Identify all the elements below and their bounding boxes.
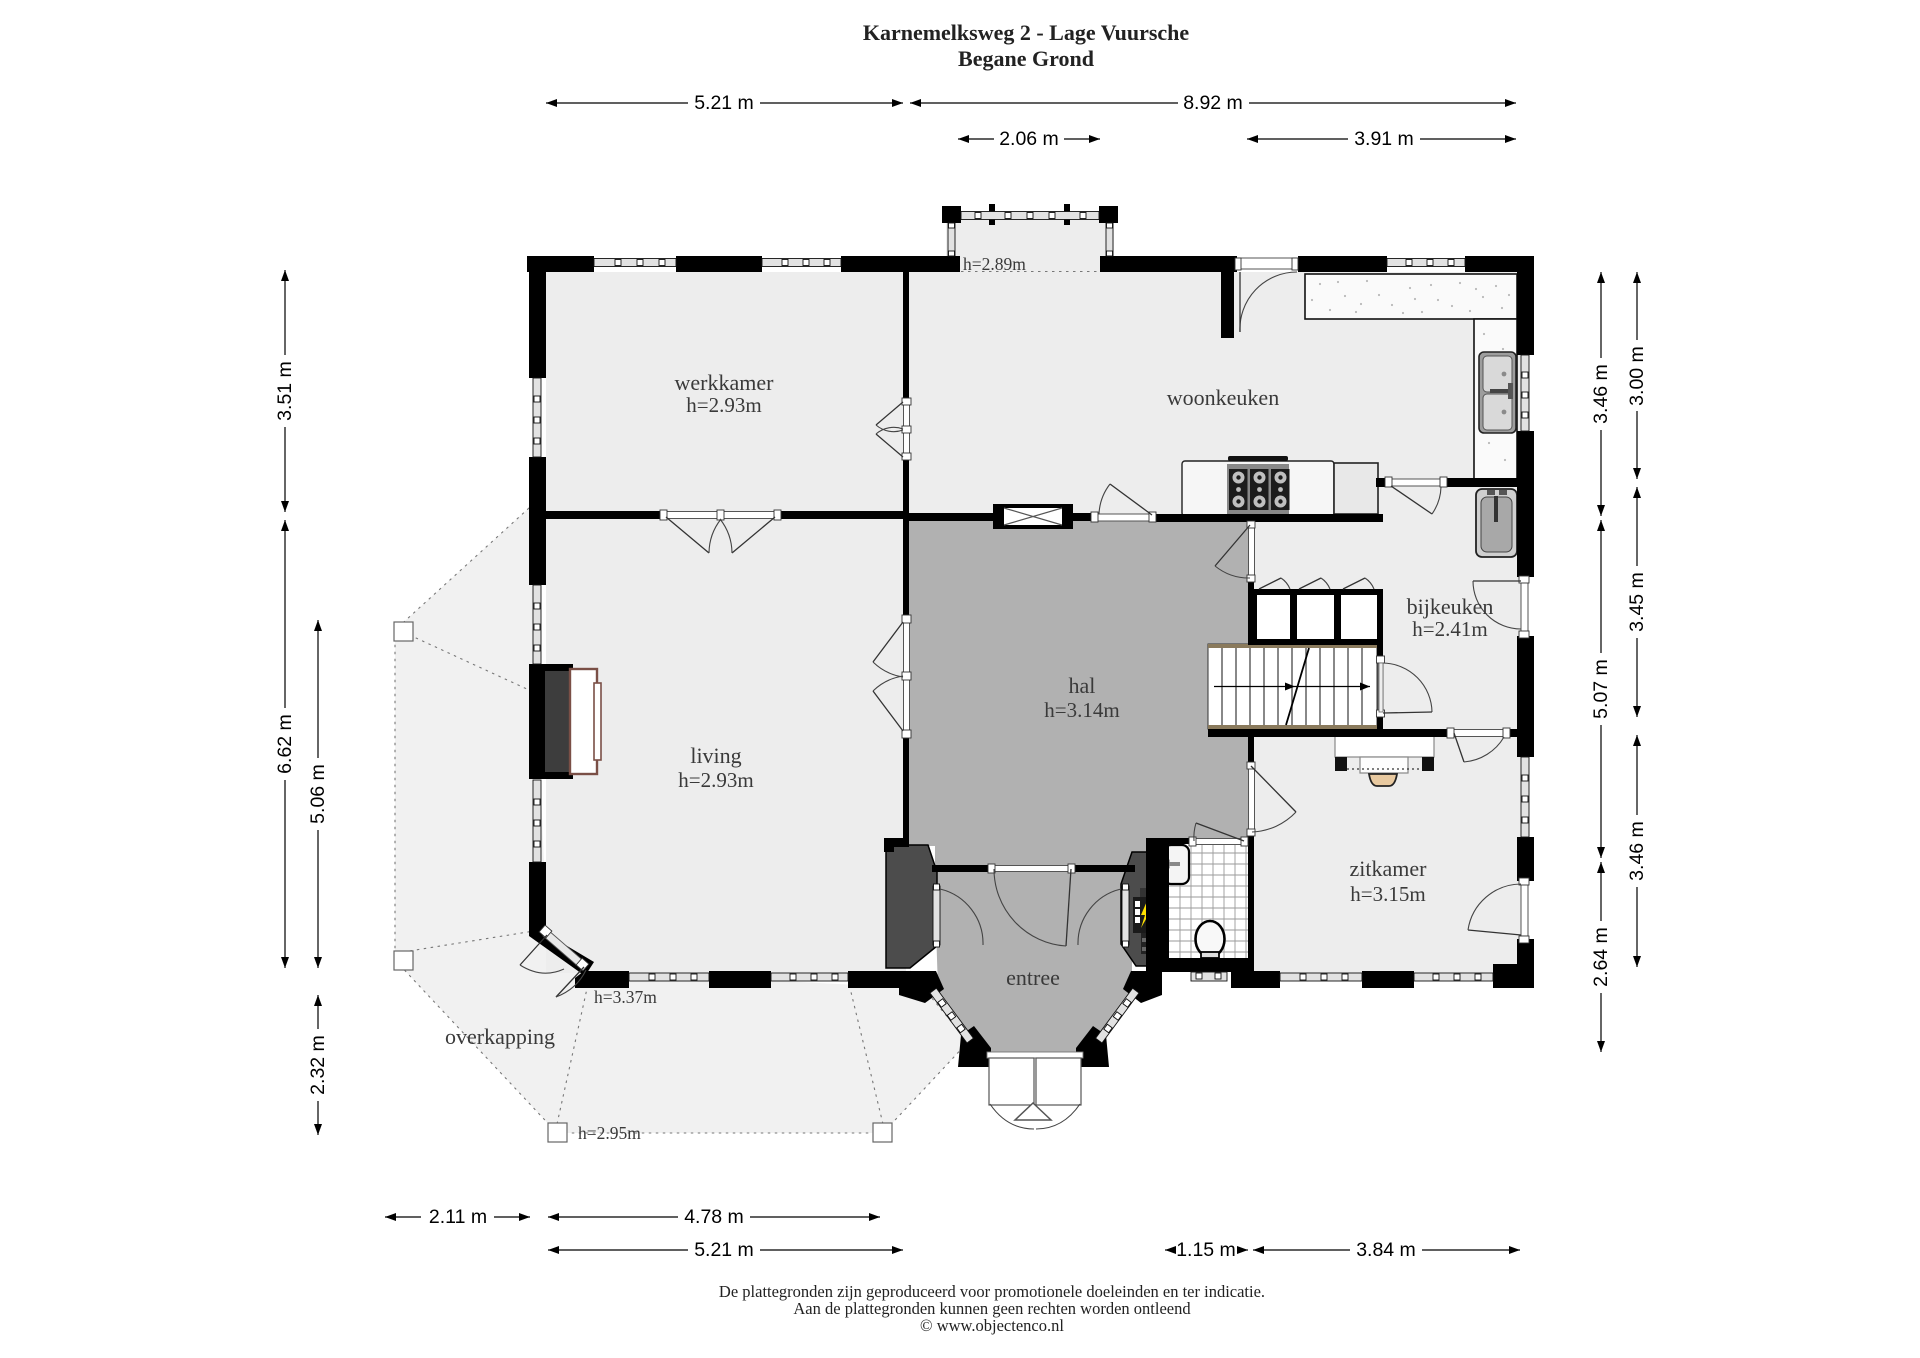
svg-text:werkkamer: werkkamer [675, 370, 775, 395]
svg-text:5.21 m: 5.21 m [694, 92, 754, 114]
svg-text:3.91 m: 3.91 m [1354, 128, 1414, 150]
svg-text:4.78 m: 4.78 m [684, 1206, 744, 1228]
svg-text:2.32 m: 2.32 m [307, 1035, 329, 1095]
svg-text:zitkamer: zitkamer [1350, 856, 1428, 881]
svg-text:h=2.89m: h=2.89m [963, 254, 1026, 274]
svg-text:2.64 m: 2.64 m [1590, 927, 1612, 987]
svg-text:2.06 m: 2.06 m [999, 128, 1059, 150]
svg-text:Begane Grond: Begane Grond [958, 46, 1094, 71]
svg-text:h=3.37m: h=3.37m [594, 987, 657, 1007]
svg-text:5.07 m: 5.07 m [1590, 659, 1612, 719]
svg-text:h=2.93m: h=2.93m [686, 393, 761, 417]
svg-text:3.00 m: 3.00 m [1626, 346, 1648, 406]
svg-text:3.46 m: 3.46 m [1626, 821, 1648, 881]
svg-text:overkapping: overkapping [445, 1024, 555, 1049]
svg-text:h=2.41m: h=2.41m [1412, 617, 1487, 641]
svg-text:h=3.14m: h=3.14m [1044, 698, 1119, 722]
svg-text:woonkeuken: woonkeuken [1167, 385, 1279, 410]
svg-text:1.15 m: 1.15 m [1176, 1239, 1236, 1261]
svg-text:3.84 m: 3.84 m [1356, 1239, 1416, 1261]
svg-text:© www.objectenco.nl: © www.objectenco.nl [920, 1316, 1064, 1335]
svg-text:h=2.93m: h=2.93m [678, 768, 753, 792]
svg-text:hal: hal [1069, 673, 1096, 698]
svg-text:3.51 m: 3.51 m [274, 361, 296, 421]
svg-text:Karnemelksweg 2 - Lage Vuursch: Karnemelksweg 2 - Lage Vuursche [863, 20, 1190, 45]
svg-text:h=2.95m: h=2.95m [578, 1123, 641, 1143]
svg-text:6.62 m: 6.62 m [274, 714, 296, 774]
svg-text:8.92 m: 8.92 m [1183, 92, 1243, 114]
svg-text:entree: entree [1006, 965, 1060, 990]
svg-text:3.45 m: 3.45 m [1626, 572, 1648, 632]
svg-text:5.21 m: 5.21 m [694, 1239, 754, 1261]
svg-text:3.46 m: 3.46 m [1590, 364, 1612, 424]
svg-text:5.06 m: 5.06 m [307, 764, 329, 824]
svg-text:h=3.15m: h=3.15m [1350, 882, 1425, 906]
svg-text:living: living [690, 743, 741, 768]
svg-text:2.11 m: 2.11 m [429, 1206, 487, 1228]
svg-text:bijkeuken: bijkeuken [1407, 594, 1494, 619]
